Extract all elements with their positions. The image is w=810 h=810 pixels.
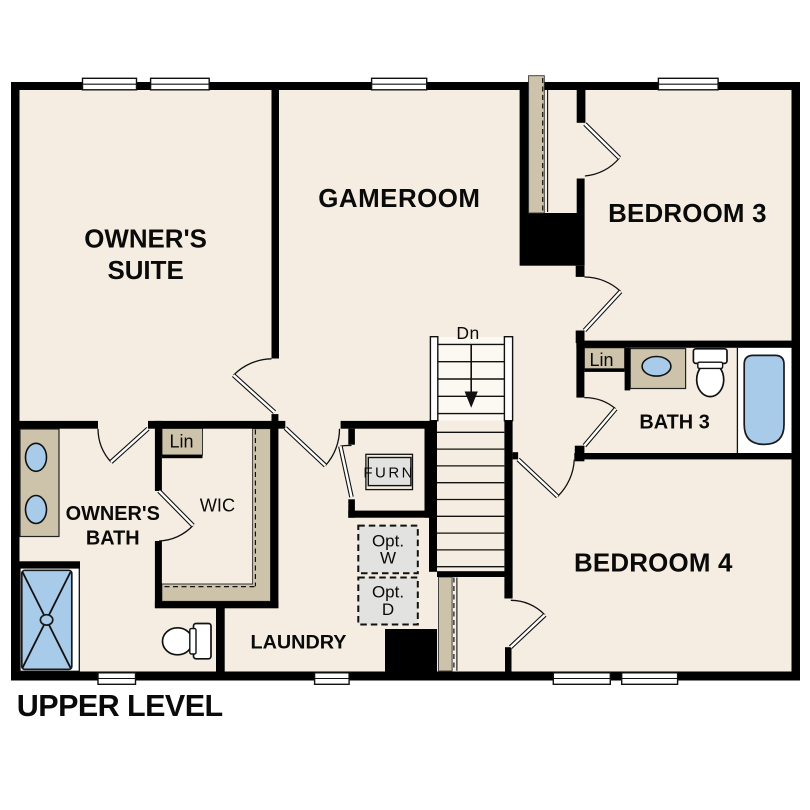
svg-text:SUITE: SUITE <box>107 257 183 285</box>
svg-text:BATH 3: BATH 3 <box>639 411 709 433</box>
svg-text:UPPER LEVEL: UPPER LEVEL <box>17 689 223 723</box>
svg-text:BATH: BATH <box>86 528 140 550</box>
svg-text:BEDROOM 3: BEDROOM 3 <box>608 200 767 228</box>
svg-text:OWNER'S: OWNER'S <box>84 226 207 254</box>
svg-text:W: W <box>380 549 396 568</box>
svg-text:BEDROOM 4: BEDROOM 4 <box>574 550 733 578</box>
svg-text:Lin: Lin <box>169 432 193 452</box>
svg-text:WIC: WIC <box>200 496 235 516</box>
svg-text:Lin: Lin <box>589 350 613 370</box>
svg-text:OWNER'S: OWNER'S <box>66 503 160 525</box>
svg-text:Opt.: Opt. <box>372 531 404 550</box>
svg-text:Opt.: Opt. <box>372 583 404 602</box>
svg-text:Dn: Dn <box>456 323 479 343</box>
svg-text:FURN: FURN <box>363 464 415 481</box>
svg-text:D: D <box>382 600 394 619</box>
svg-text:LAUNDRY: LAUNDRY <box>251 632 347 654</box>
svg-text:GAMEROOM: GAMEROOM <box>318 185 480 213</box>
